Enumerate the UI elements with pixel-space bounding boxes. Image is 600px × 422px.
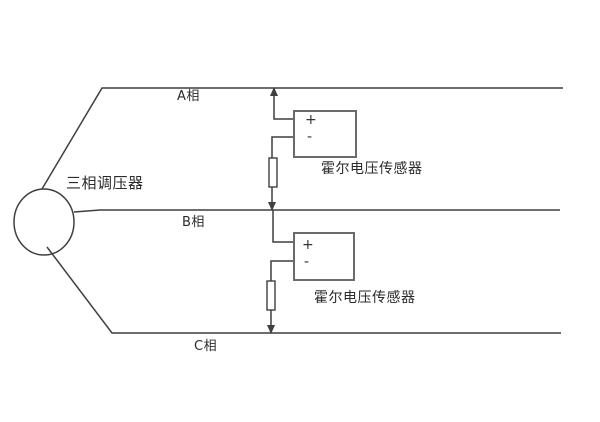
regulator-label: 三相调压器 [66, 175, 144, 192]
circuit-diagram: 三相调压器 A相 B相 C相 霍尔电压传感器 霍尔电压传感器 + - + - [0, 0, 600, 422]
sensor2-resistor [267, 281, 275, 310]
sensor2-minus-terminal-label: - [304, 254, 309, 270]
sensor2-plus-terminal-label: + [302, 237, 314, 253]
sensor1-resistor [269, 158, 277, 187]
sensor1-box [294, 111, 356, 157]
regulator-circle [14, 189, 74, 255]
sensor2-plus-wire [273, 210, 294, 242]
phase-b-wire [74, 210, 560, 212]
sensor1-minus-terminal-label: - [307, 129, 312, 145]
phase-c-label: C相 [194, 340, 217, 355]
phase-b-label: B相 [182, 216, 205, 231]
sensor2-label: 霍尔电压传感器 [314, 290, 416, 306]
diagram-canvas [0, 0, 600, 422]
sensor2-minus-wire [271, 261, 294, 281]
sensor1-minus-wire [272, 137, 294, 158]
sensor1-plus-wire [274, 88, 294, 119]
sensor1-plus-terminal-label: + [305, 112, 317, 128]
sensor1-label: 霍尔电压传感器 [321, 161, 423, 177]
phase-a-label: A相 [177, 90, 200, 105]
